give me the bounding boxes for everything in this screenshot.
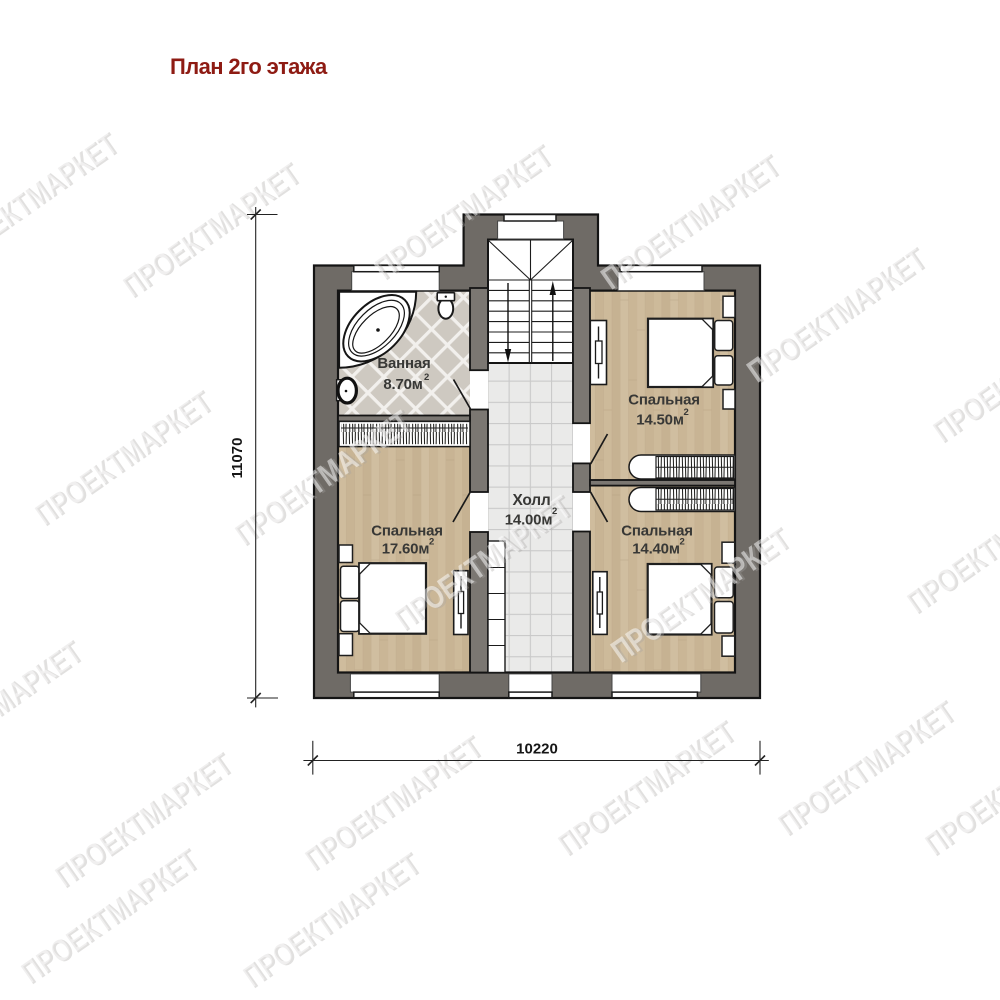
svg-text:2: 2 [679,537,684,548]
svg-text:11070: 11070 [229,438,246,479]
svg-text:2: 2 [552,506,557,517]
svg-text:8.70м: 8.70м [383,376,422,393]
svg-text:14.40м: 14.40м [632,541,680,558]
svg-text:Ванная: Ванная [377,355,430,372]
svg-text:2: 2 [683,407,688,418]
svg-text:10220: 10220 [516,741,558,758]
svg-text:14.00м: 14.00м [505,512,553,529]
svg-text:Холл: Холл [512,492,550,509]
svg-text:План 2го этажа: План 2го этажа [170,54,328,79]
svg-text:Спальная: Спальная [628,392,700,409]
svg-text:2: 2 [424,372,429,383]
svg-text:14.50м: 14.50м [636,411,684,428]
svg-text:17.60м: 17.60м [382,541,430,558]
svg-text:2: 2 [429,537,434,548]
